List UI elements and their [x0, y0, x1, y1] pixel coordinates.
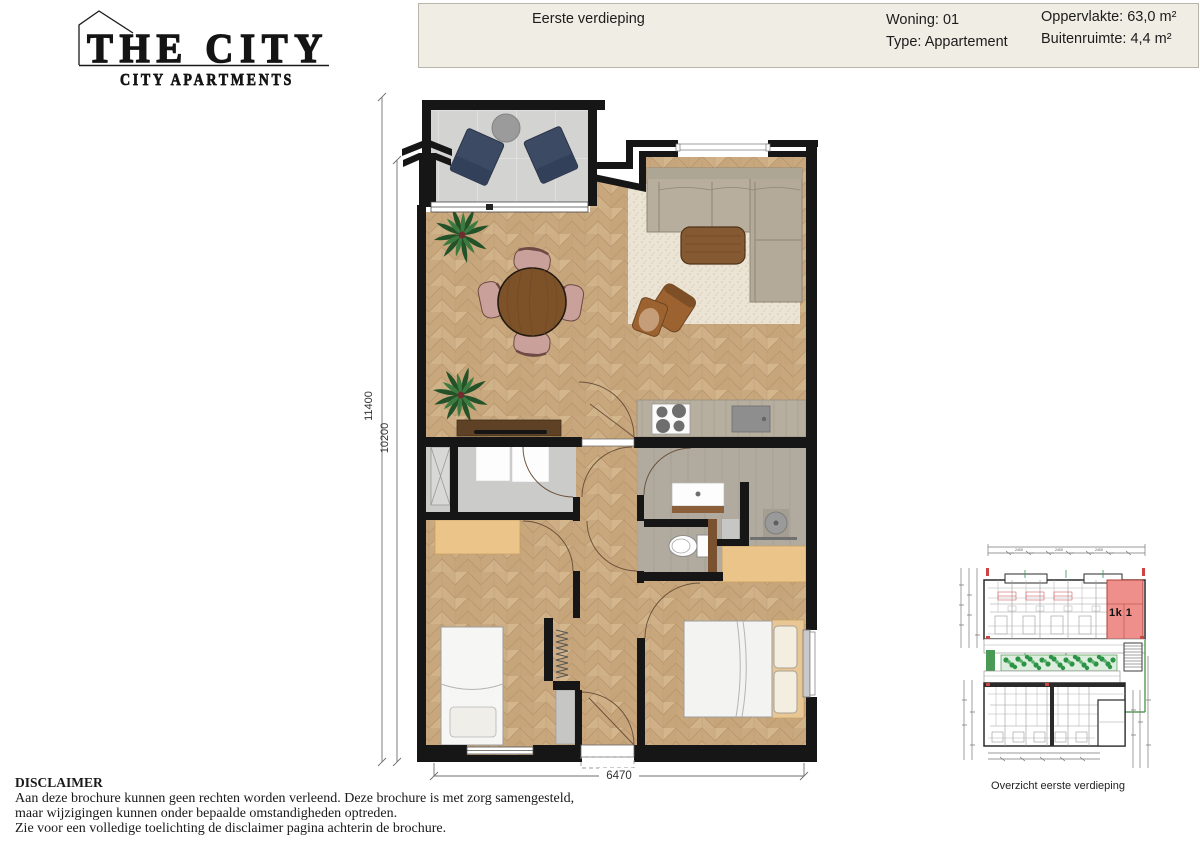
svg-text:2400: 2400 [1015, 548, 1023, 552]
svg-text:6470: 6470 [606, 770, 632, 782]
svg-text:11400: 11400 [363, 391, 375, 421]
svg-text:2400: 2400 [1095, 548, 1103, 552]
svg-text:Overzicht eerste verdieping: Overzicht eerste verdieping [991, 780, 1125, 792]
svg-text:2400: 2400 [1055, 548, 1063, 552]
svg-text:10200: 10200 [379, 423, 391, 454]
svg-text:1k 1: 1k 1 [1109, 607, 1132, 619]
